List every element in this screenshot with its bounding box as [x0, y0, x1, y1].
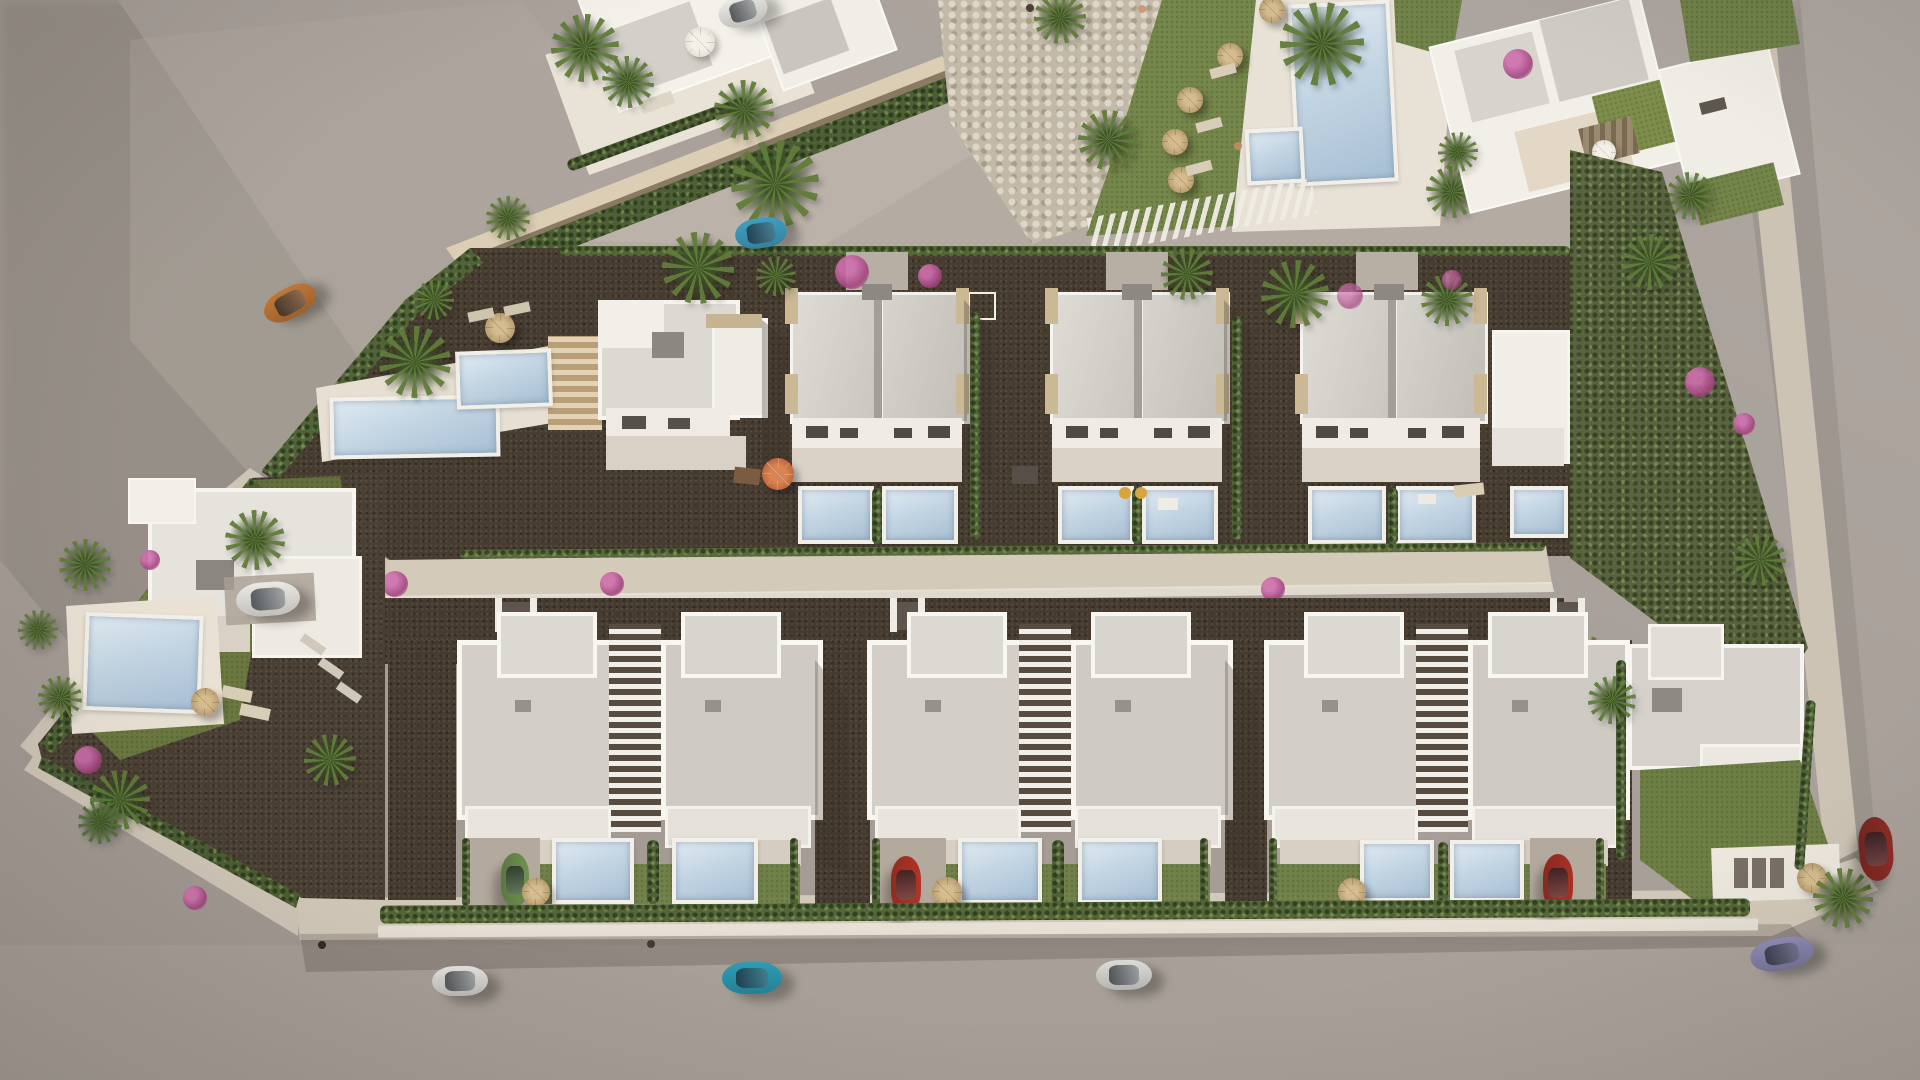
vignette — [0, 0, 1920, 1080]
screenshot-root — [0, 0, 1920, 1080]
scene — [0, 0, 1920, 1080]
